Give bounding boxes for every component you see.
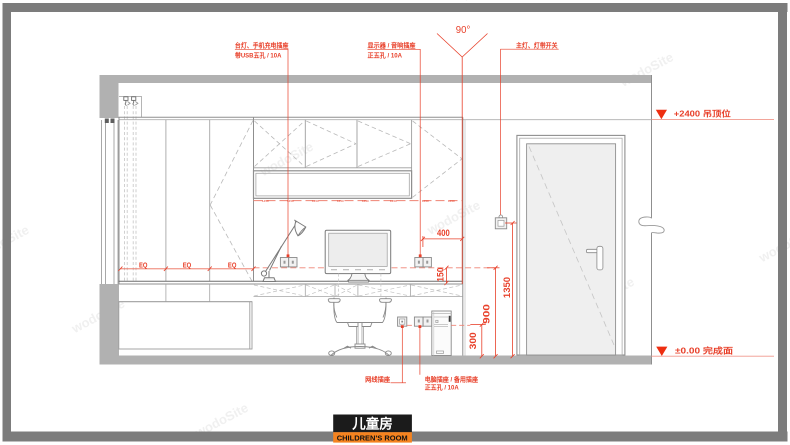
svg-text:1450: 1450 bbox=[312, 199, 319, 203]
svg-text:1450: 1450 bbox=[337, 199, 344, 203]
svg-text:EQ: EQ bbox=[183, 260, 192, 269]
svg-text:正五孔 / 10A: 正五孔 / 10A bbox=[425, 383, 459, 391]
svg-text:±0.00 完成面: ±0.00 完成面 bbox=[675, 345, 733, 355]
svg-text:主灯、灯带开关: 主灯、灯带开关 bbox=[516, 40, 558, 49]
svg-text:EQ: EQ bbox=[228, 260, 237, 269]
svg-text:1450: 1450 bbox=[362, 199, 369, 203]
svg-text:显示器 / 音响插座: 显示器 / 音响插座 bbox=[368, 40, 416, 49]
svg-text:1450: 1450 bbox=[262, 199, 269, 203]
svg-text:台灯、手机充电插座: 台灯、手机充电插座 bbox=[235, 40, 289, 49]
svg-text:网线插座: 网线插座 bbox=[365, 374, 390, 383]
svg-text:90°: 90° bbox=[456, 25, 471, 36]
svg-text:1450: 1450 bbox=[448, 199, 455, 203]
svg-text:900: 900 bbox=[481, 304, 491, 324]
svg-text:带USB五孔 / 10A: 带USB五孔 / 10A bbox=[235, 50, 282, 59]
svg-text:1450: 1450 bbox=[422, 199, 429, 203]
svg-text:CHILDREN'S ROOM: CHILDREN'S ROOM bbox=[337, 433, 408, 442]
svg-text:1450: 1450 bbox=[390, 199, 397, 203]
svg-text:正五孔 / 10A: 正五孔 / 10A bbox=[368, 51, 403, 59]
svg-text:电脑插座 / 备用插座: 电脑插座 / 备用插座 bbox=[425, 374, 479, 383]
svg-text:400: 400 bbox=[437, 228, 450, 238]
svg-text:儿童房: 儿童房 bbox=[351, 416, 393, 432]
svg-text:+2400 吊顶位: +2400 吊顶位 bbox=[674, 109, 731, 119]
svg-text:300: 300 bbox=[468, 332, 478, 349]
svg-text:1350: 1350 bbox=[502, 277, 512, 298]
svg-text:EQ: EQ bbox=[139, 260, 148, 269]
svg-text:150: 150 bbox=[435, 267, 445, 281]
